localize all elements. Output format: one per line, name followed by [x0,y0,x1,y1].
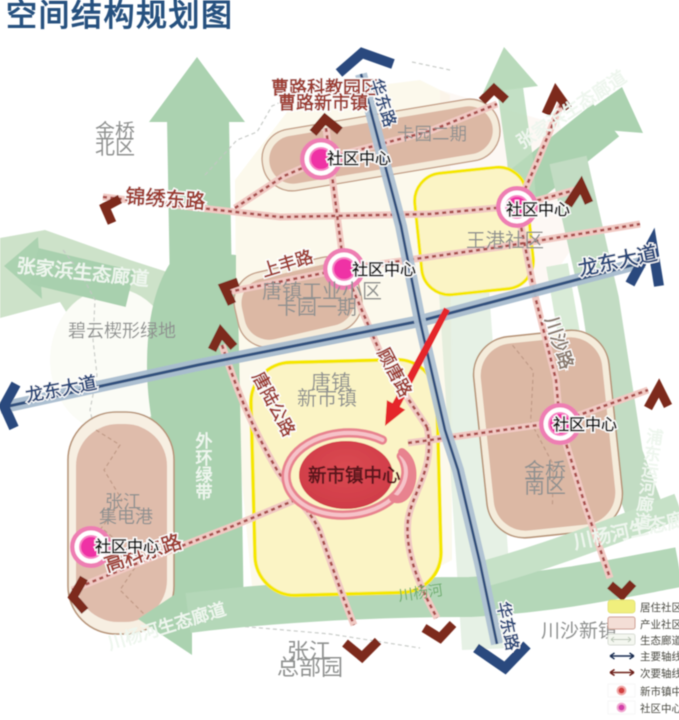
svg-text:外环绿带: 外环绿带 [193,431,213,501]
svg-text:曹路新市镇: 曹路新市镇 [278,92,368,113]
svg-text:生态廊道: 生态廊道 [640,634,679,647]
svg-text:王港社区: 王港社区 [466,230,544,252]
svg-text:空间结构规划图: 空间结构规划图 [6,0,234,33]
svg-text:次要轴线: 次要轴线 [640,667,679,680]
svg-text:总部园: 总部园 [277,655,343,680]
svg-text:主要轴线: 主要轴线 [640,650,679,663]
svg-text:新市镇中心: 新市镇中心 [640,685,679,698]
svg-text:社区中心: 社区中心 [552,415,617,434]
svg-text:社区中心: 社区中心 [640,702,679,715]
svg-text:碧云楔形绿地: 碧云楔形绿地 [68,321,176,341]
svg-text:新市镇: 新市镇 [297,387,357,410]
svg-text:社区中心: 社区中心 [351,260,416,279]
svg-text:社区中心: 社区中心 [505,200,570,219]
svg-text:卡园二期: 卡园二期 [397,124,467,144]
svg-text:新市镇中心: 新市镇中心 [308,465,401,486]
svg-text:集电港: 集电港 [99,507,153,527]
svg-text:社区中心: 社区中心 [326,149,391,168]
svg-text:川沙新镇: 川沙新镇 [541,620,617,642]
svg-text:居住社区: 居住社区 [640,601,679,614]
svg-text:卡园一期: 卡园一期 [277,296,357,319]
svg-text:北区: 北区 [95,136,135,159]
svg-text:南区: 南区 [524,475,566,498]
svg-text:产业社区: 产业社区 [640,618,679,631]
svg-text:社区中心: 社区中心 [94,537,159,556]
